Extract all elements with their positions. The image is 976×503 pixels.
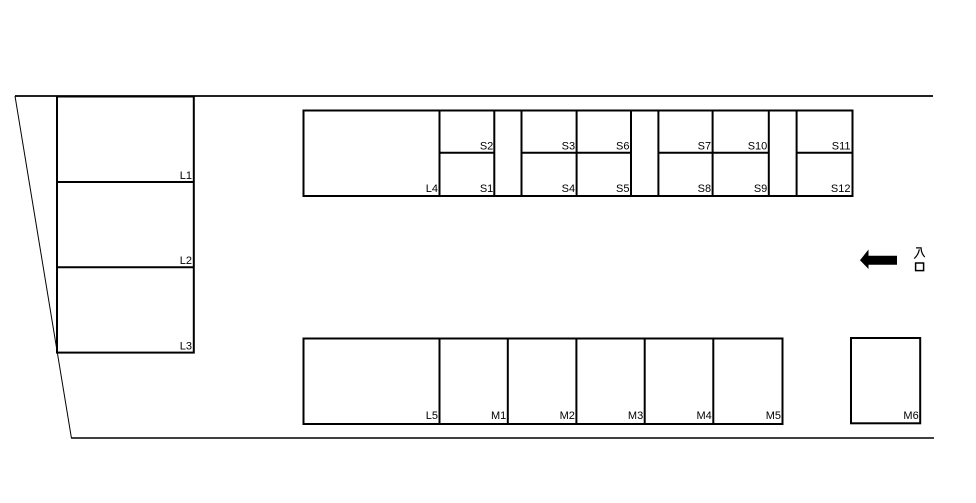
svg-text:L5: L5 bbox=[426, 410, 438, 422]
svg-text:M2: M2 bbox=[560, 410, 575, 422]
svg-text:S3: S3 bbox=[562, 140, 575, 152]
svg-text:S12: S12 bbox=[831, 183, 851, 195]
svg-text:M3: M3 bbox=[628, 410, 643, 422]
svg-text:S11: S11 bbox=[832, 140, 851, 152]
svg-text:S9: S9 bbox=[754, 183, 767, 195]
svg-text:S2: S2 bbox=[480, 140, 493, 152]
svg-text:S10: S10 bbox=[748, 140, 768, 152]
svg-text:M6: M6 bbox=[903, 410, 918, 422]
svg-text:L4: L4 bbox=[426, 183, 438, 195]
svg-text:S8: S8 bbox=[698, 183, 711, 195]
svg-text:L3: L3 bbox=[180, 341, 192, 353]
svg-text:L2: L2 bbox=[180, 255, 192, 267]
svg-text:S4: S4 bbox=[562, 183, 575, 195]
svg-text:S1: S1 bbox=[480, 183, 493, 195]
svg-text:L1: L1 bbox=[180, 170, 192, 182]
svg-text:S6: S6 bbox=[616, 140, 629, 152]
svg-text:M1: M1 bbox=[491, 410, 506, 422]
svg-text:S5: S5 bbox=[616, 183, 629, 195]
svg-text:S7: S7 bbox=[698, 140, 711, 152]
svg-text:M4: M4 bbox=[697, 410, 712, 422]
svg-text:M5: M5 bbox=[766, 410, 781, 422]
